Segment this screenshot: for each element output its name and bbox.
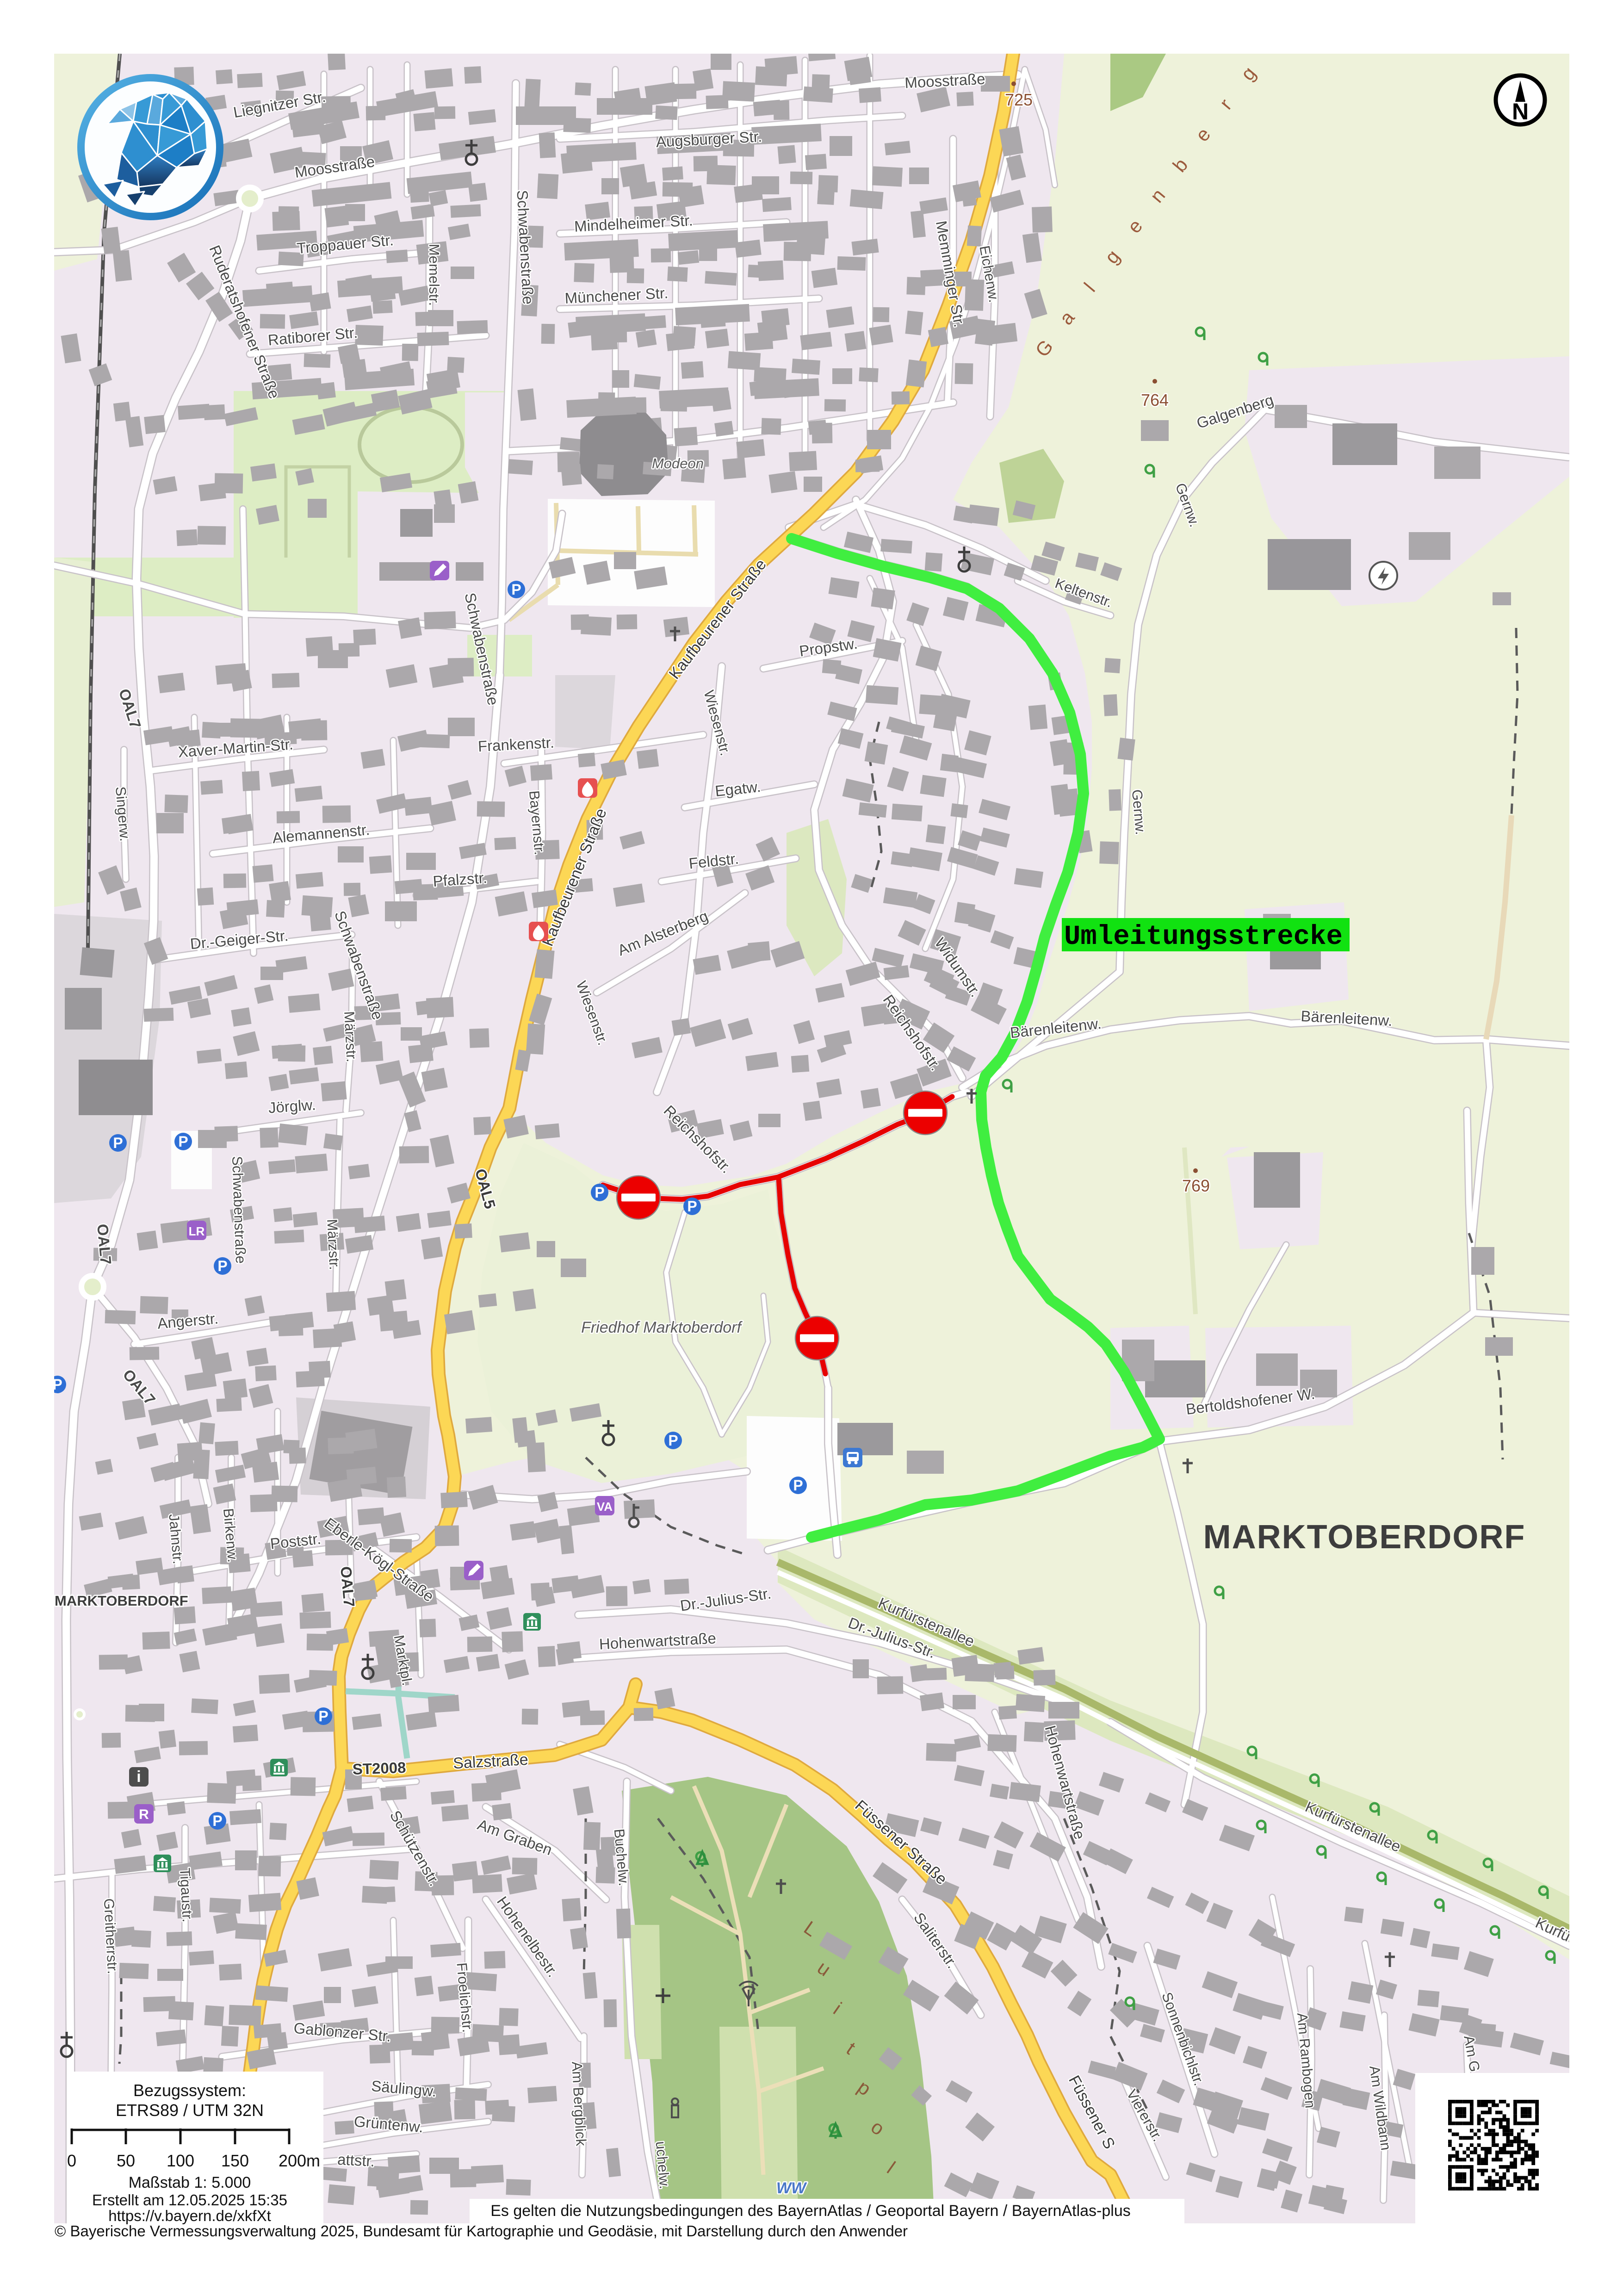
svg-text:© Bayerische Vermessungsverwal: © Bayerische Vermessungsverwaltung 2025,… <box>55 2222 908 2240</box>
svg-text:MARKTOBERDORF: MARKTOBERDORF <box>55 1593 188 1609</box>
svg-text:Umleitungsstrecke: Umleitungsstrecke <box>1064 921 1343 952</box>
svg-text:150: 150 <box>221 2151 249 2170</box>
svg-text:P: P <box>687 1198 697 1215</box>
svg-text:P: P <box>113 1135 123 1151</box>
svg-text:MARKTOBERDORF: MARKTOBERDORF <box>1203 1519 1526 1556</box>
svg-text:Modeon: Modeon <box>652 455 704 472</box>
svg-text:OAL7: OAL7 <box>94 1223 115 1266</box>
svg-text:i: i <box>136 1768 141 1786</box>
svg-text:Märzstr.: Märzstr. <box>341 1011 360 1062</box>
svg-text:Es gelten die Nutzungsbedingun: Es gelten die Nutzungsbedingungen des Ba… <box>490 2202 1131 2220</box>
svg-text:0: 0 <box>67 2151 76 2170</box>
svg-text:VA: VA <box>597 1500 613 1514</box>
svg-text:N: N <box>1512 99 1529 124</box>
svg-text:Erstellt am 12.05.2025 15:35: Erstellt am 12.05.2025 15:35 <box>92 2191 287 2209</box>
svg-text:ETRS89 / UTM 32N: ETRS89 / UTM 32N <box>116 2101 264 2120</box>
svg-text:769: 769 <box>1182 1176 1210 1195</box>
svg-text:ST2008: ST2008 <box>352 1759 406 1778</box>
svg-text:P: P <box>178 1133 188 1150</box>
svg-text:P: P <box>217 1258 227 1274</box>
svg-text:Bezugssystem:: Bezugssystem: <box>133 2081 246 2100</box>
svg-text:100: 100 <box>167 2151 194 2170</box>
svg-text:725: 725 <box>1005 90 1033 109</box>
svg-text:https://v.bayern.de/xkfXt: https://v.bayern.de/xkfXt <box>108 2207 271 2224</box>
svg-text:attstr.: attstr. <box>337 2151 375 2170</box>
svg-text:P: P <box>511 581 521 598</box>
svg-text:P: P <box>595 1184 604 1201</box>
svg-text:Jörglw.: Jörglw. <box>268 1096 316 1116</box>
svg-text:Tigaustr.: Tigaustr. <box>177 1868 196 1923</box>
svg-text:764: 764 <box>1141 391 1169 410</box>
svg-text:Maßstab 1: 5.000: Maßstab 1: 5.000 <box>129 2174 251 2191</box>
svg-text:OAL7: OAL7 <box>337 1566 358 1608</box>
svg-text:Memelstr.: Memelstr. <box>426 244 442 306</box>
svg-text:P: P <box>668 1432 678 1449</box>
svg-text:200m: 200m <box>279 2151 320 2170</box>
svg-text:P: P <box>793 1477 803 1494</box>
svg-text:WW: WW <box>776 2179 807 2197</box>
svg-text:50: 50 <box>117 2151 135 2170</box>
svg-text:P: P <box>212 1812 222 1829</box>
svg-text:R: R <box>139 1807 149 1822</box>
svg-text:LR: LR <box>189 1224 205 1238</box>
svg-text:Märzstr.: Märzstr. <box>324 1218 343 1270</box>
svg-text:P: P <box>318 1708 328 1725</box>
svg-text:Friedhof Marktoberdorf: Friedhof Marktoberdorf <box>581 1319 743 1336</box>
